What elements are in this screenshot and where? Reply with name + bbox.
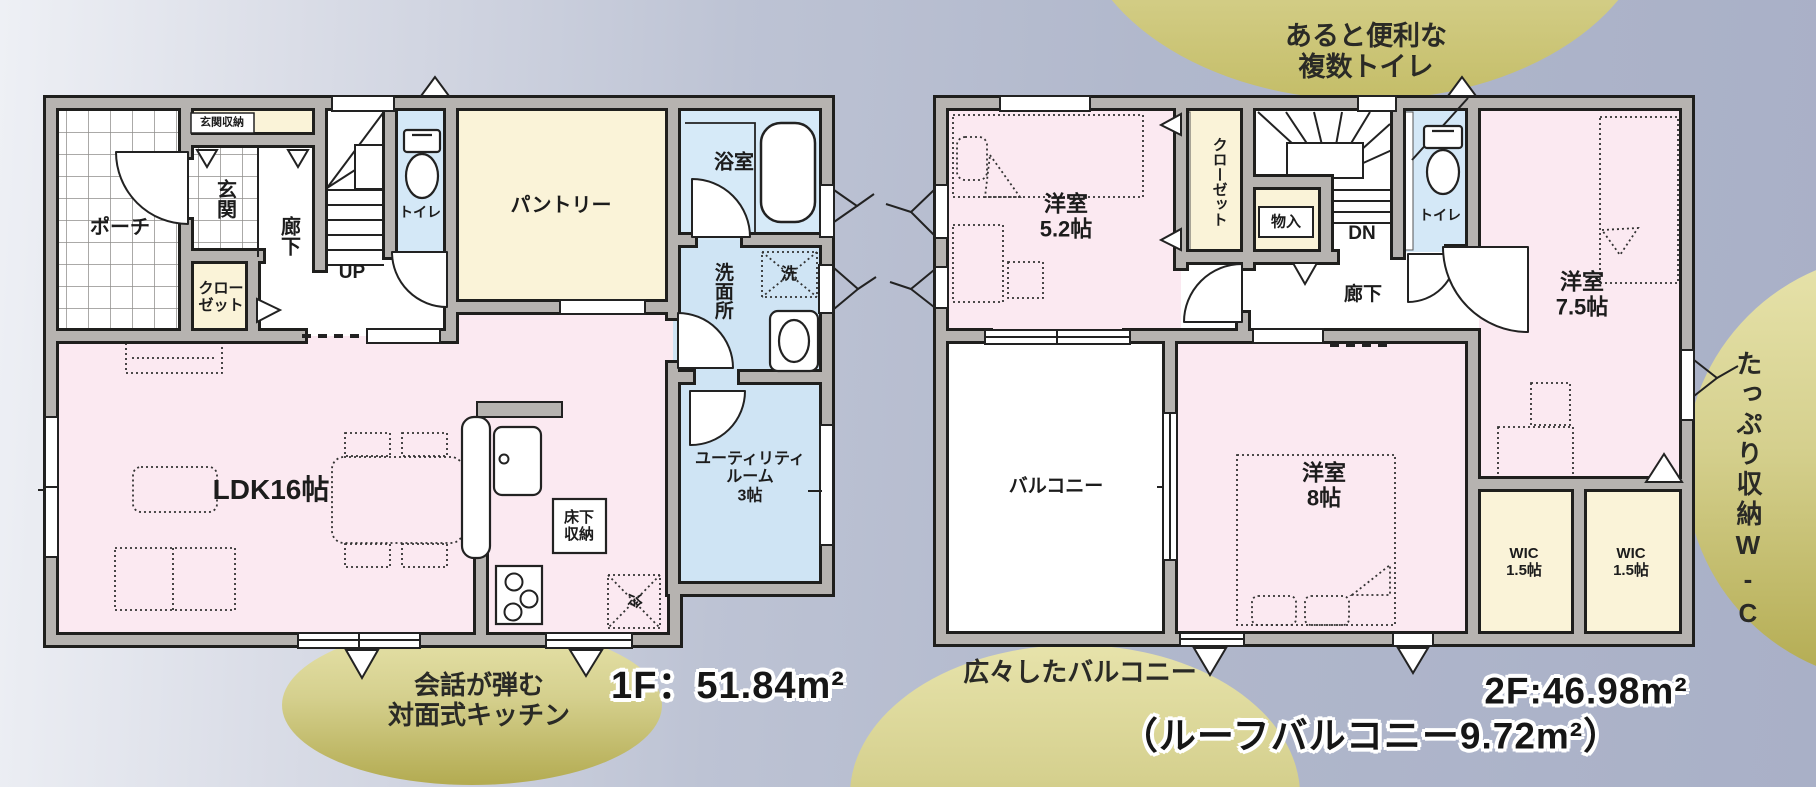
room-label-up: UP [339, 262, 365, 284]
room-label-hallway-1f: 廊下 [277, 216, 300, 256]
toilet-icon [404, 130, 440, 198]
room-label-bath: 浴室 [714, 152, 754, 175]
roof-balcony-label: （ルーフバルコニー9.72m²） [1121, 716, 1621, 759]
floorplan-canvas: ポーチ 玄関 玄関収納 廊下 UP クロー ゼット トイレ パントリー 浴室 洗… [0, 0, 1816, 787]
room-label-closet-2f: クローゼット [1210, 137, 1227, 227]
floor2-plan [886, 77, 1738, 675]
room-label-bedroom52: 洋室 5.2帖 [1040, 192, 1093, 243]
room-label-entrance: 玄関 [213, 179, 236, 219]
room-label-utility: ユーティリティ ルーム 3帖 [695, 450, 805, 505]
room-label-toilet-1f: トイレ [399, 204, 441, 220]
room-label-closet-1f: クロー ゼット [198, 280, 243, 315]
room-label-storage-2f: 物入 [1271, 213, 1301, 230]
room-label-ldk: LDK16帖 [213, 474, 330, 506]
room-label-wic1: WIC 1.5帖 [1506, 545, 1542, 580]
room-label-bedroom75: 洋室 7.5帖 [1556, 270, 1609, 321]
room-label-wic2: WIC 1.5帖 [1613, 545, 1649, 580]
room-label-washer: 洗 [781, 266, 797, 284]
kitchen-badge-text: 会話が弾む 対面式キッチン [388, 671, 570, 731]
room-label-toilet-2f: トイレ [1419, 207, 1461, 223]
room-label-hallway-2f: 廊下 [1344, 284, 1382, 306]
room-label-fridge: 冷 [625, 593, 642, 608]
room-label-pantry: パントリー [511, 195, 612, 218]
vanity-icon [770, 311, 818, 371]
room-label-underfloor: 床下 収納 [564, 509, 594, 544]
room-label-bedroom8: 洋室 8帖 [1302, 461, 1346, 512]
room-label-entrance-storage: 玄関収納 [200, 117, 244, 130]
toilet2-icon [1424, 126, 1462, 194]
room-label-washroom: 洗面所 [711, 263, 733, 320]
room-label-porch: ポーチ [90, 217, 150, 240]
right-badge-text: たっぷり収納W-C [1732, 350, 1762, 632]
top-badge-text: あると便利な 複数トイレ [1285, 21, 1447, 83]
room-label-balcony: バルコニー [1009, 476, 1104, 498]
floor1-area-label: 1F：51.84m² [611, 665, 845, 709]
floor1-window-arrows [834, 190, 876, 309]
balcony-badge-text: 広々したバルコニー [963, 658, 1196, 688]
room-label-dn: DN [1348, 223, 1375, 245]
floorplan-drawing [0, 0, 1816, 787]
floor2-area-label: 2F:46.98m² [1484, 671, 1687, 714]
